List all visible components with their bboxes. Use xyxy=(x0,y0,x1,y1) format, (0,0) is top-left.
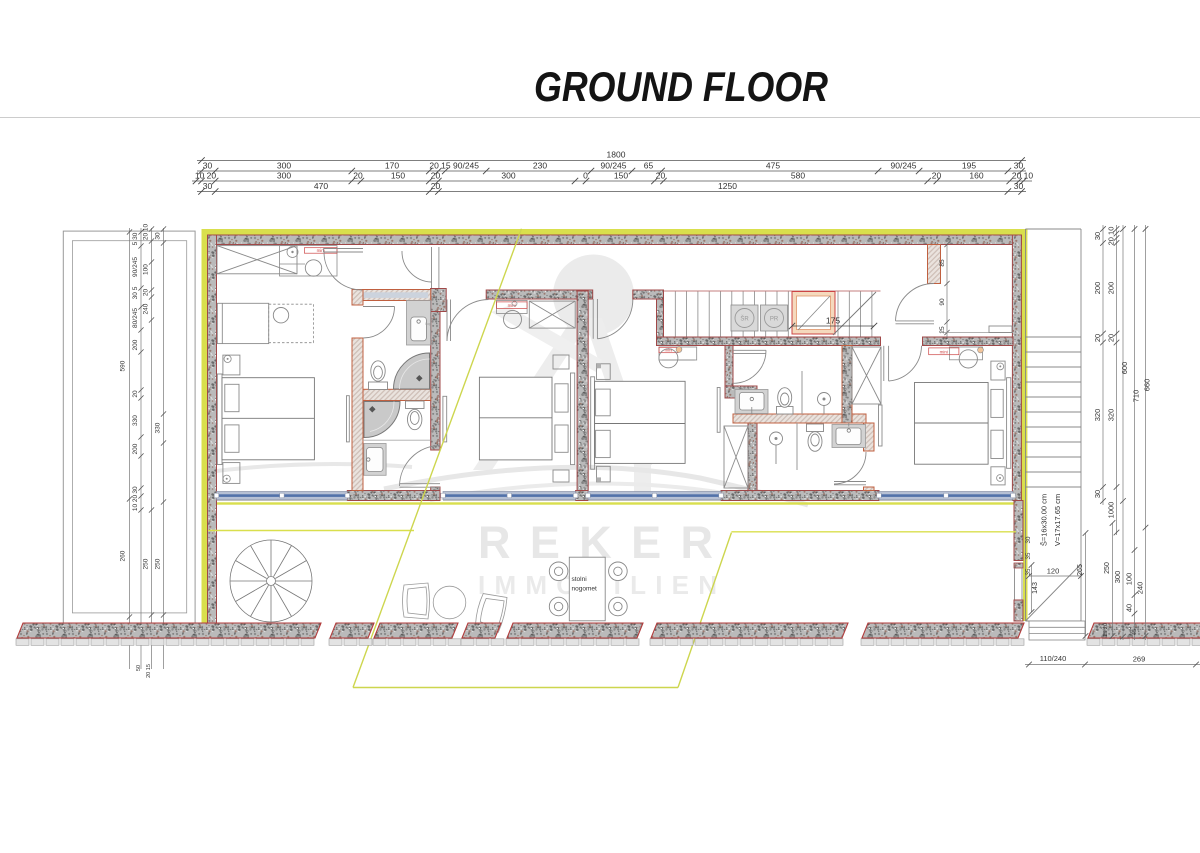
svg-text:30: 30 xyxy=(203,160,213,170)
svg-text:20: 20 xyxy=(353,170,363,180)
svg-text:475: 475 xyxy=(766,160,780,170)
svg-text:30: 30 xyxy=(1093,490,1102,498)
svg-text:30: 30 xyxy=(132,486,139,494)
svg-text:20 10: 20 10 xyxy=(1012,170,1034,180)
svg-text:40: 40 xyxy=(1125,604,1134,612)
svg-text:0: 0 xyxy=(583,170,588,180)
svg-text:320: 320 xyxy=(1107,409,1116,422)
svg-text:30: 30 xyxy=(1093,232,1102,240)
svg-text:240: 240 xyxy=(143,303,150,314)
svg-text:90/245: 90/245 xyxy=(453,160,479,170)
svg-text:590: 590 xyxy=(120,360,127,371)
svg-text:300: 300 xyxy=(277,170,291,180)
svg-text:269: 269 xyxy=(1133,655,1146,664)
svg-text:30: 30 xyxy=(155,232,162,240)
svg-text:85: 85 xyxy=(939,259,946,267)
svg-text:660: 660 xyxy=(1143,379,1152,392)
svg-text:PR: PR xyxy=(770,317,779,323)
svg-text:90/245: 90/245 xyxy=(132,257,139,277)
svg-text:170: 170 xyxy=(385,160,399,170)
svg-text:20: 20 xyxy=(143,289,150,297)
svg-text:100: 100 xyxy=(143,264,150,275)
svg-text:30: 30 xyxy=(1014,181,1024,191)
svg-text:1000: 1000 xyxy=(1107,502,1116,519)
svg-text:160: 160 xyxy=(969,170,983,180)
svg-text:35: 35 xyxy=(1025,552,1032,559)
svg-text:10 20: 10 20 xyxy=(195,170,217,180)
svg-text:45: 45 xyxy=(1132,629,1138,635)
svg-text:260: 260 xyxy=(120,550,127,561)
svg-text:240: 240 xyxy=(1136,582,1145,595)
svg-text:1250: 1250 xyxy=(718,181,737,191)
svg-text:230: 230 xyxy=(533,160,547,170)
svg-text:200: 200 xyxy=(132,339,139,350)
svg-text:143: 143 xyxy=(1032,582,1039,594)
svg-text:90/245: 90/245 xyxy=(601,160,627,170)
svg-text:265: 265 xyxy=(1077,564,1084,576)
svg-text:20: 20 xyxy=(132,390,139,398)
svg-text:5 30: 5 30 xyxy=(132,232,139,245)
svg-text:1800: 1800 xyxy=(607,150,626,160)
svg-text:20 15: 20 15 xyxy=(429,160,451,170)
svg-text:100: 100 xyxy=(1125,573,1134,586)
svg-text:stolni: stolni xyxy=(572,576,587,583)
svg-text:30: 30 xyxy=(1025,536,1032,543)
svg-text:200: 200 xyxy=(1093,282,1102,295)
svg-text:20 10: 20 10 xyxy=(143,223,150,240)
svg-text:195: 195 xyxy=(962,160,976,170)
svg-text:30: 30 xyxy=(1014,160,1024,170)
svg-text:300: 300 xyxy=(501,170,515,180)
svg-text:90/245: 90/245 xyxy=(891,160,917,170)
svg-text:710: 710 xyxy=(1132,390,1141,403)
svg-text:20: 20 xyxy=(932,170,942,180)
svg-text:kup: kup xyxy=(425,322,430,326)
svg-text:ŠR: ŠR xyxy=(740,316,749,323)
svg-text:20: 20 xyxy=(431,170,441,180)
svg-text:20 10: 20 10 xyxy=(1107,227,1116,246)
svg-text:nogomet: nogomet xyxy=(572,586,597,593)
svg-text:90: 90 xyxy=(939,298,946,306)
svg-text:300: 300 xyxy=(277,160,291,170)
svg-text:175: 175 xyxy=(826,316,840,326)
svg-text:600: 600 xyxy=(1120,362,1129,375)
svg-text:330: 330 xyxy=(132,415,139,426)
svg-text:150: 150 xyxy=(391,170,405,180)
svg-text:200: 200 xyxy=(132,443,139,454)
svg-text:250: 250 xyxy=(1104,562,1111,574)
svg-text:150: 150 xyxy=(614,170,628,180)
svg-text:30 5: 30 5 xyxy=(132,286,139,299)
svg-text:15 20: 15 20 xyxy=(1103,623,1109,637)
svg-text:80/245: 80/245 xyxy=(132,308,139,328)
svg-text:V=17x17.65 cm: V=17x17.65 cm xyxy=(1053,494,1062,546)
svg-text:120: 120 xyxy=(1047,567,1060,576)
svg-text:Š=16x30.00 cm: Š=16x30.00 cm xyxy=(1040,494,1049,546)
svg-text:330: 330 xyxy=(155,422,162,433)
svg-text:65: 65 xyxy=(644,160,654,170)
svg-text:30: 30 xyxy=(203,181,213,191)
svg-text:300: 300 xyxy=(1113,571,1122,584)
svg-text:20 15: 20 15 xyxy=(146,664,152,678)
svg-text:20: 20 xyxy=(1107,334,1116,342)
svg-text:580: 580 xyxy=(791,170,805,180)
svg-text:250: 250 xyxy=(155,558,162,569)
svg-text:mini: mini xyxy=(940,349,948,354)
svg-text:20: 20 xyxy=(1093,334,1102,342)
svg-text:320: 320 xyxy=(1093,409,1102,422)
svg-text:470: 470 xyxy=(314,181,328,191)
svg-text:250: 250 xyxy=(143,558,150,569)
svg-text:50: 50 xyxy=(136,665,142,671)
svg-text:GROUND FLOOR: GROUND FLOOR xyxy=(534,63,829,110)
svg-text:110/240: 110/240 xyxy=(1040,654,1067,663)
svg-text:20: 20 xyxy=(656,170,666,180)
svg-text:20: 20 xyxy=(431,181,441,191)
svg-text:10 20: 10 20 xyxy=(132,494,139,511)
svg-text:200: 200 xyxy=(1107,282,1116,295)
